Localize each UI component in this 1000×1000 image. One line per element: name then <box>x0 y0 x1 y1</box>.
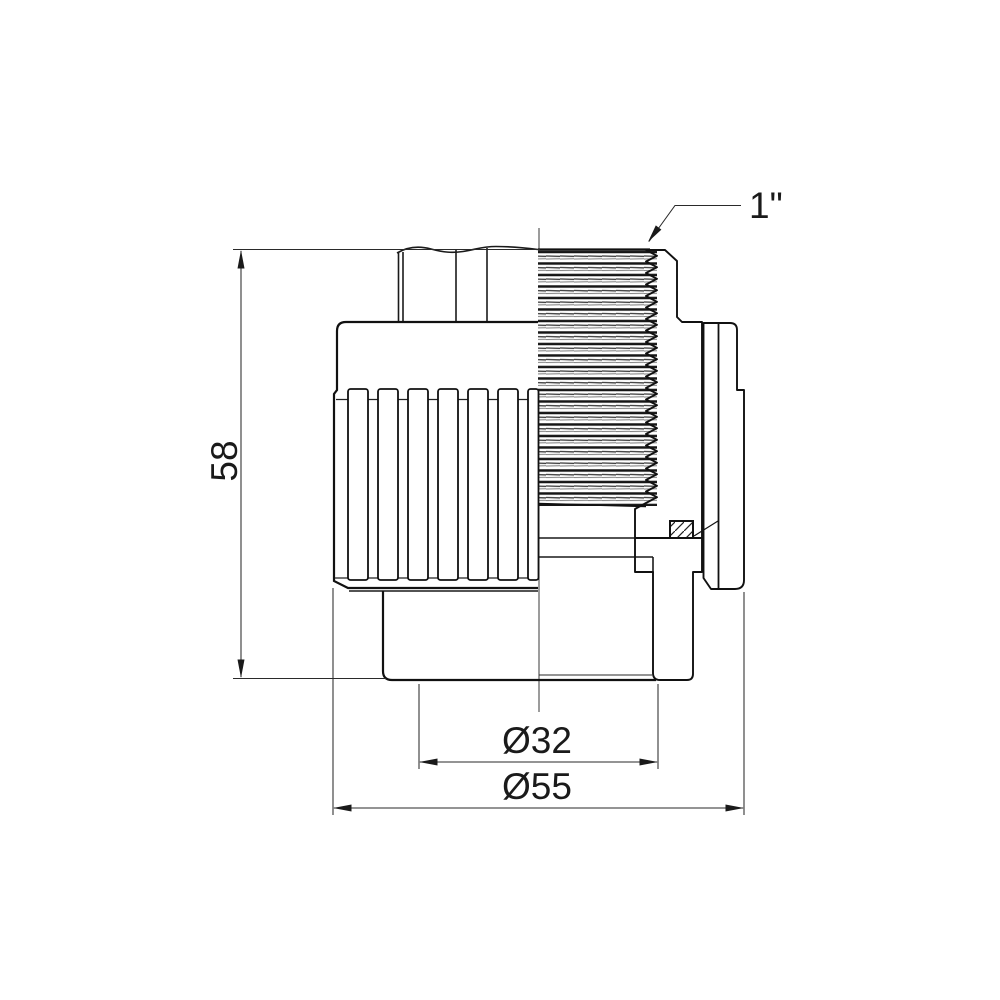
dimension-label-height: 58 <box>204 440 245 481</box>
rib <box>438 389 458 580</box>
arrowhead-right <box>726 805 745 812</box>
socket-sleeve <box>383 591 656 680</box>
arrowhead-left <box>419 759 438 766</box>
arrowhead-down <box>238 660 245 679</box>
dimension-label-socket-diameter: Ø32 <box>502 720 572 761</box>
rib <box>408 389 428 580</box>
section-view-right-half <box>538 250 744 681</box>
key-leader-tick <box>694 521 718 536</box>
arrowhead-left <box>333 805 352 812</box>
dimension-label-body-diameter: Ø55 <box>502 766 572 807</box>
hex-top <box>397 247 538 323</box>
rib <box>378 389 398 580</box>
thread-size-callout: 1" <box>648 185 783 242</box>
drawing-canvas: 58 Ø32 Ø55 1" <box>0 0 1000 1000</box>
rib <box>468 389 488 580</box>
arrowhead-up <box>238 250 245 269</box>
leader-line <box>649 206 741 242</box>
grip-ribs <box>348 389 539 580</box>
thread-size-label: 1" <box>749 185 783 226</box>
insert-key-detail <box>670 521 693 538</box>
rib <box>498 389 518 580</box>
arrowhead-right <box>640 759 659 766</box>
thread-lines <box>538 250 657 506</box>
plastic-body-section <box>635 538 702 680</box>
knurled-collar <box>704 323 745 589</box>
rib <box>528 389 539 580</box>
dimension-height: 58 <box>204 250 540 679</box>
rib <box>348 389 368 580</box>
technical-drawing: 58 Ø32 Ø55 1" <box>0 0 1000 1000</box>
